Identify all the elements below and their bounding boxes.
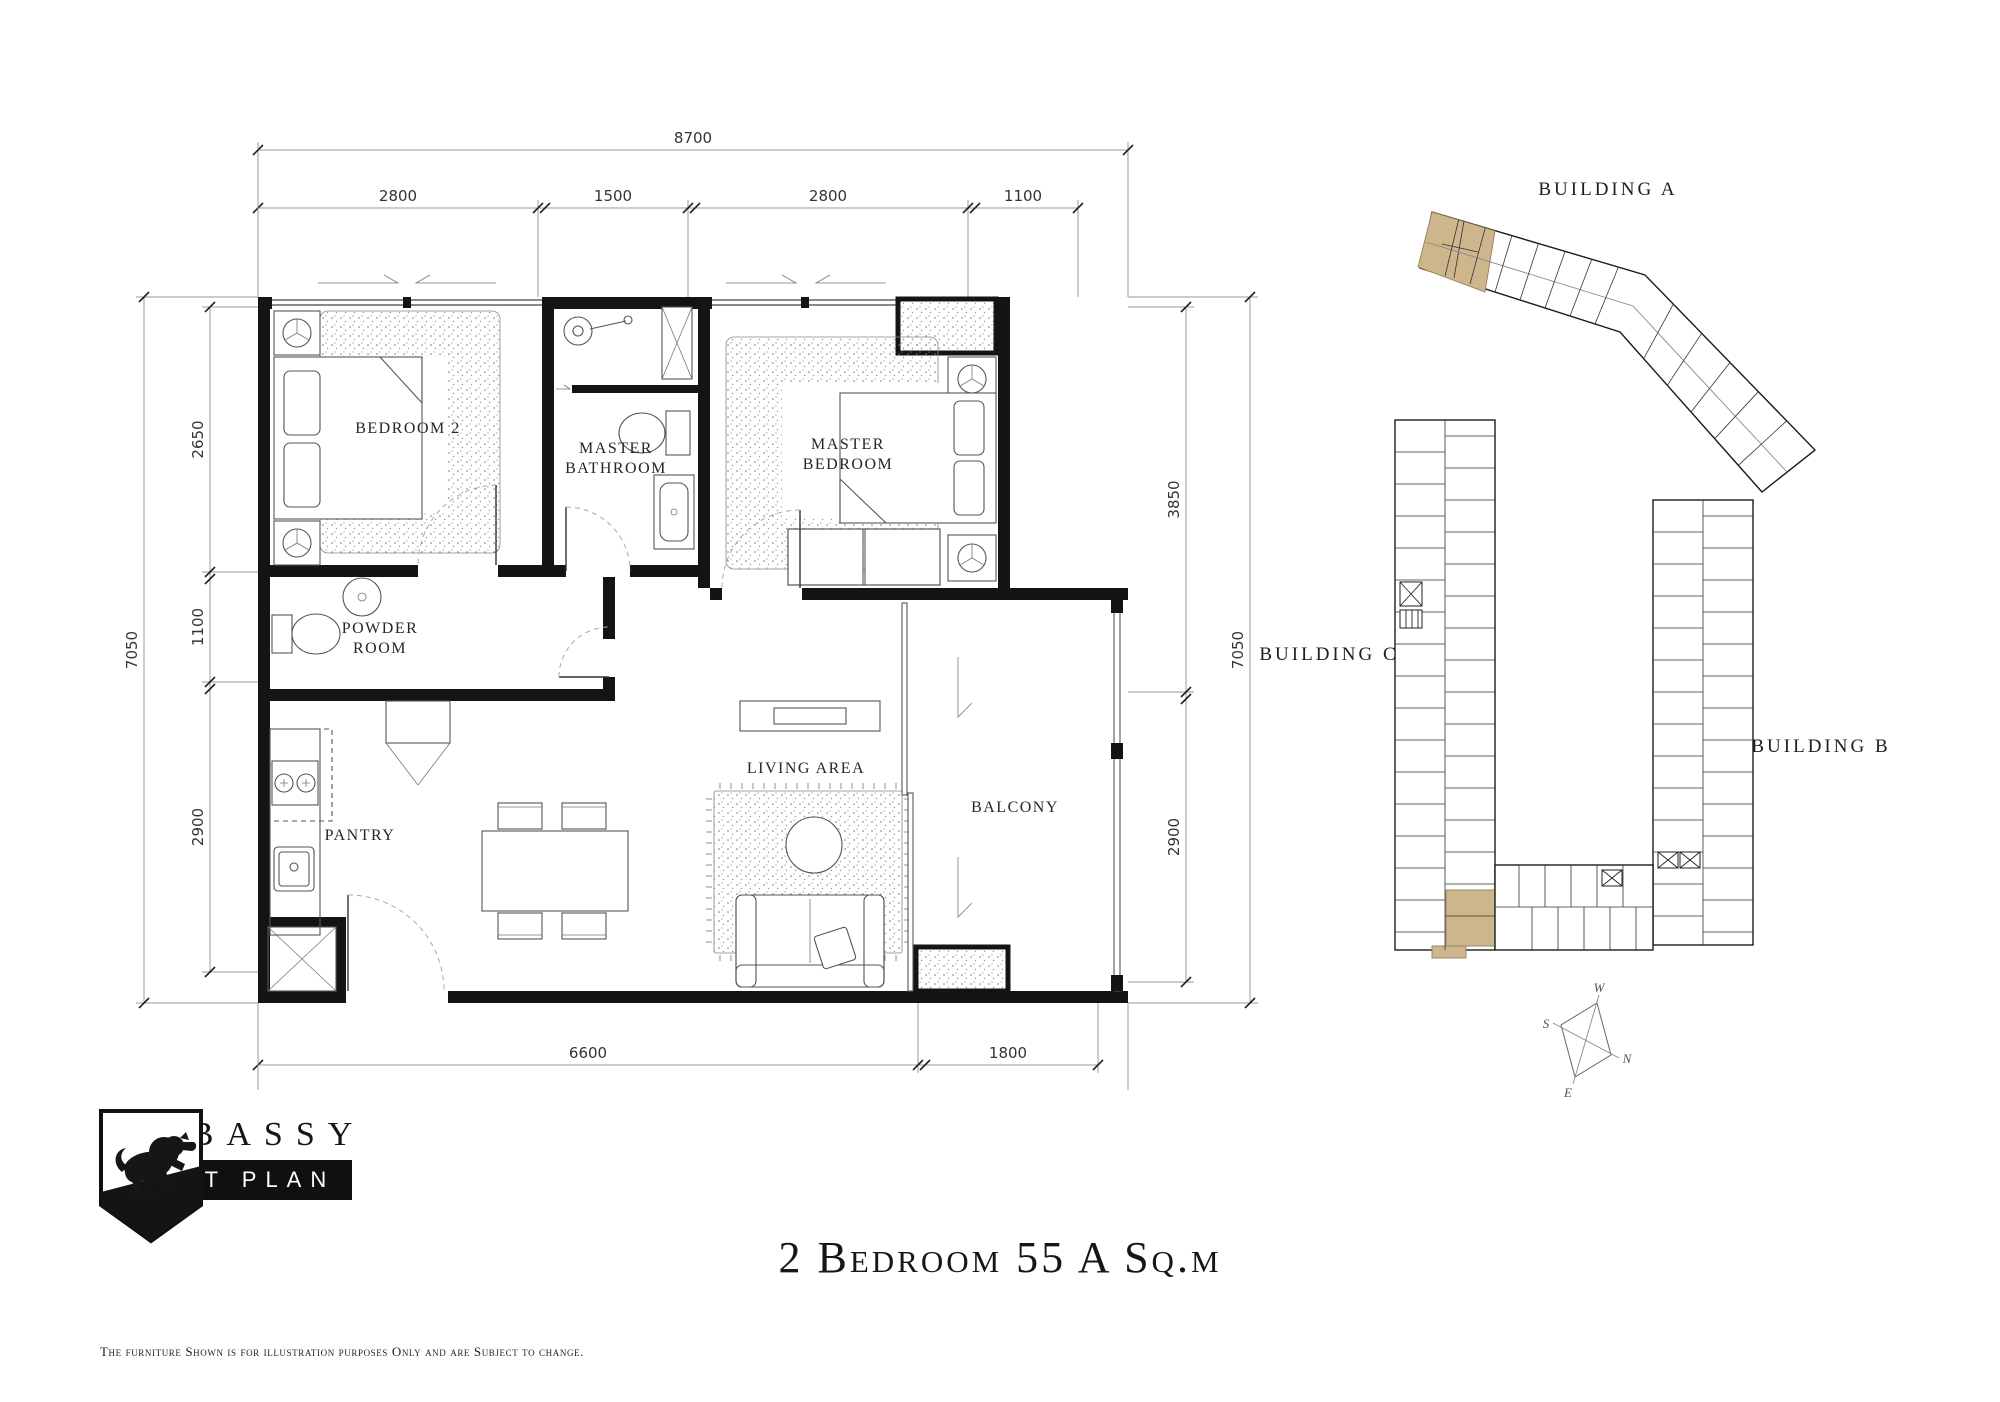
building-c-label: BUILDING C <box>1259 644 1398 665</box>
pillow <box>954 461 984 515</box>
counter <box>270 729 320 935</box>
toilet-tank <box>666 411 690 455</box>
dim-label: 1100 <box>1004 187 1042 205</box>
glass-railing <box>1114 603 1120 991</box>
dining-set <box>482 803 628 939</box>
door-swing <box>566 507 630 571</box>
brand-logo: EMBASSY UNIT PLAN <box>98 1108 368 1200</box>
tv-console <box>740 701 880 731</box>
room-label: MASTER <box>579 440 653 457</box>
page-title: 2 Bedroom 55 A Sq.m <box>700 1232 1300 1283</box>
floor-plan: 2800150028001100870026501100290070503850… <box>40 30 1300 1090</box>
shower-arm <box>590 321 626 329</box>
balcony: BALCONY <box>902 597 1123 991</box>
dim-label: 1100 <box>189 608 207 646</box>
shaft <box>268 927 336 991</box>
lion-shield-icon <box>98 1108 204 1244</box>
door-swing <box>559 627 609 677</box>
building-key-plan: BUILDING A BUILDING C BUILDING B <box>1250 120 1950 1120</box>
dimension-chains: 2800150028001100870026501100290070503850… <box>123 129 1258 1090</box>
building-b-label: BUILDING B <box>1751 736 1890 757</box>
room-label: BEDROOM <box>803 456 894 473</box>
highlighted-unit-a <box>1418 212 1495 292</box>
dim-label: 6600 <box>569 1044 607 1062</box>
compass-e: E <box>1563 1085 1572 1100</box>
dim-label: 2900 <box>189 808 207 846</box>
toilet-bowl <box>292 614 340 654</box>
room-label: POWDER <box>342 620 419 637</box>
compass-s: S <box>1543 1016 1550 1031</box>
pillow <box>284 371 320 435</box>
dim-label: 2800 <box>379 187 417 205</box>
balcony-planter <box>916 947 1008 991</box>
building-b <box>1653 500 1753 945</box>
room-label: LIVING AREA <box>747 760 865 777</box>
shower-head-icon <box>624 316 632 324</box>
dim-label: 2800 <box>809 187 847 205</box>
window-slide-arrow <box>726 275 796 283</box>
round-basin <box>343 578 381 616</box>
highlighted-unit-c <box>1446 890 1495 946</box>
bedroom2: BEDROOM 2 <box>274 311 500 565</box>
window-slide-arrow <box>318 275 398 283</box>
stove <box>272 761 318 805</box>
entrance-door-swing <box>348 895 444 991</box>
dim-label: 2900 <box>1165 818 1183 856</box>
connector-wing <box>1495 865 1653 950</box>
pantry: PANTRY <box>270 701 450 935</box>
wardrobe <box>865 529 940 585</box>
master-bathroom: MASTER BATHROOM <box>556 307 700 571</box>
dim-label: 1800 <box>989 1044 1027 1062</box>
room-label: BALCONY <box>971 799 1059 816</box>
building-c <box>1395 420 1495 958</box>
dim-label: 7050 <box>123 631 141 669</box>
unit-plan-page: 2800150028001100870026501100290070503850… <box>0 0 2000 1402</box>
dining-table <box>482 831 628 911</box>
compass-w: W <box>1594 980 1606 995</box>
room-label: PANTRY <box>325 827 396 844</box>
sliding-door-panel <box>902 603 907 795</box>
pillow <box>954 401 984 455</box>
sink <box>274 847 314 891</box>
window-slide-arrow <box>816 275 886 283</box>
powder-room: POWDER ROOM <box>272 578 609 677</box>
room-label: ROOM <box>353 640 407 657</box>
compass-rose: W S N E <box>1543 980 1633 1100</box>
toilet-tank <box>272 615 292 653</box>
pillow <box>284 443 320 507</box>
dim-label: 8700 <box>674 129 712 147</box>
drainage-arrow <box>958 657 972 917</box>
room-label: BEDROOM 2 <box>355 420 461 437</box>
room-label: MASTER <box>811 436 885 453</box>
dim-label: 3850 <box>1165 480 1183 518</box>
room-label: BATHROOM <box>565 460 667 477</box>
compass-n: N <box>1622 1051 1633 1066</box>
dim-label: 2650 <box>189 420 207 458</box>
dim-label: 1500 <box>594 187 632 205</box>
building-a-label: BUILDING A <box>1538 179 1677 200</box>
sliding-door-panel <box>908 793 913 991</box>
coffee-table <box>786 817 842 873</box>
disclaimer-text: The furniture Shown is for illustration … <box>100 1344 660 1360</box>
master-bedroom: MASTER BEDROOM <box>722 337 996 588</box>
shower-drain <box>564 317 592 345</box>
dim-label: 7050 <box>1229 631 1247 669</box>
living-area: LIVING AREA <box>706 701 910 987</box>
fridge <box>386 701 450 743</box>
window-slide-arrow <box>416 275 496 283</box>
wardrobe <box>788 529 863 585</box>
